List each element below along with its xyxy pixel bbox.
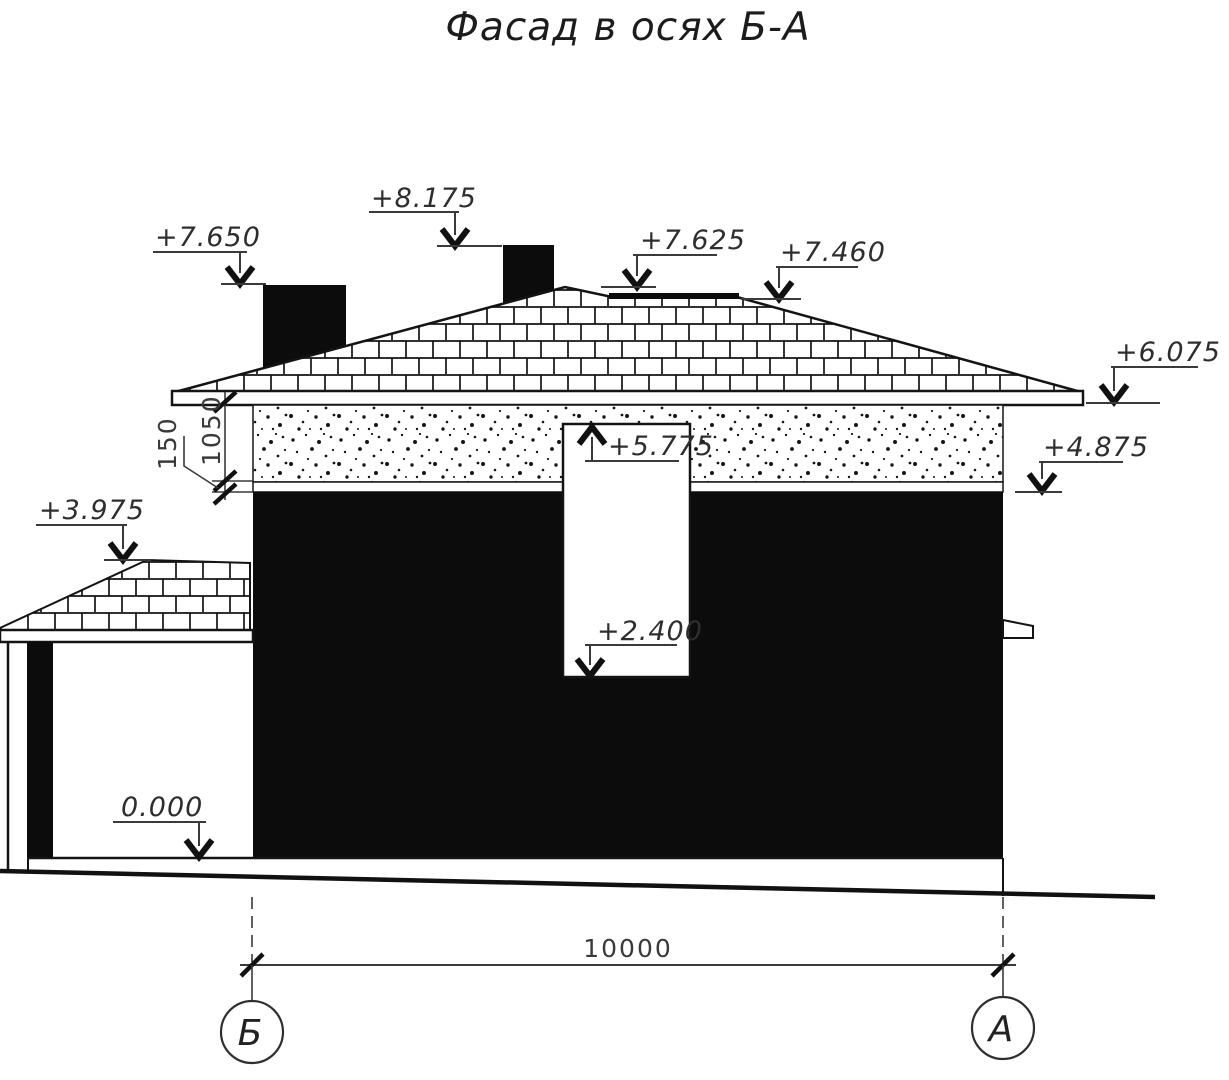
band-height-dimension: 1050 150 (153, 392, 253, 504)
elevation-marker-porch-roof: +3.975 (36, 495, 151, 560)
elevation-label: +8.175 (371, 183, 477, 214)
elevation-marker-roof-ridge: +7.460 (741, 237, 886, 299)
porch-roof (0, 560, 250, 632)
overall-width-label: 10000 (583, 934, 673, 963)
right-canopy (1003, 620, 1033, 638)
facade-drawing: Фасад в осях Б-А +7.650 +8.175 +7.625 (0, 0, 1229, 1080)
overall-width-dimension: 10000 (240, 897, 1016, 1001)
band-height-label: 1050 (197, 394, 226, 466)
ground-line (0, 871, 1155, 897)
elevation-label: +7.460 (780, 237, 886, 268)
elevation-label: +6.075 (1115, 337, 1221, 368)
elevation-label: +5.775 (608, 431, 714, 462)
porch-post (27, 642, 53, 858)
elevation-label: +2.400 (597, 616, 703, 647)
fascia-height-label: 150 (153, 416, 182, 470)
elevation-marker-roof-peak: +7.625 (601, 225, 746, 287)
elevation-label: +7.650 (155, 222, 261, 253)
elevation-marker-chimney-left: +7.650 (153, 222, 266, 284)
elevation-marker-ground-floor: 0.000 (113, 792, 212, 857)
axis-label: Б (238, 1013, 263, 1054)
facade-drawing-page: Фасад в осях Б-А +7.650 +8.175 +7.625 (0, 0, 1229, 1080)
elevation-marker-chimney-right: +8.175 (369, 183, 502, 246)
drawing-title: Фасад в осях Б-А (445, 5, 810, 50)
porch-fascia-board (0, 630, 253, 642)
elevation-label: +4.875 (1043, 432, 1149, 463)
axis-label: А (987, 1009, 1014, 1050)
elevation-label: 0.000 (121, 792, 203, 823)
axis-marker-left: Б (221, 1001, 283, 1063)
main-fascia-board (172, 391, 1083, 405)
axis-marker-right: А (972, 997, 1034, 1059)
elevation-marker-wall-top: +4.875 (1015, 432, 1149, 492)
elevation-label: +3.975 (39, 495, 145, 526)
elevation-marker-eave: +6.075 (1086, 337, 1221, 403)
elevation-label: +7.625 (640, 225, 746, 256)
